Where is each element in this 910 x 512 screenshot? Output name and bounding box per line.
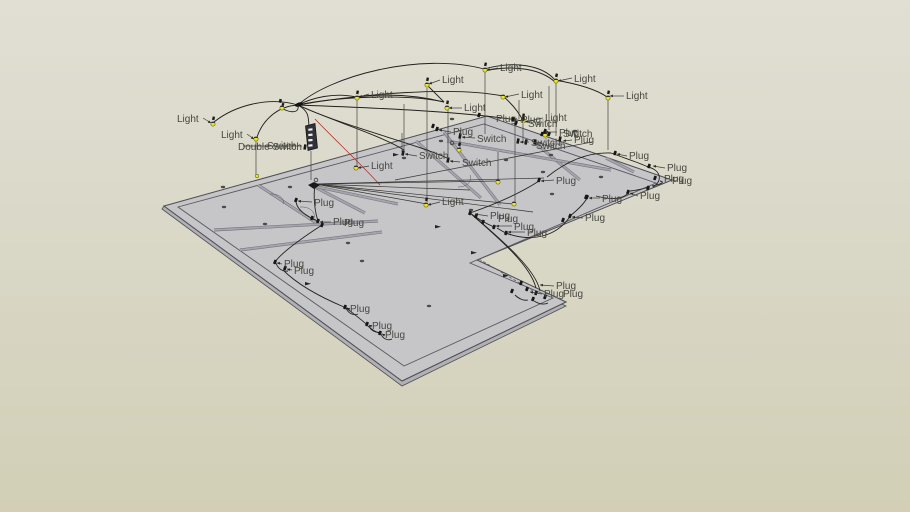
svg-text:Light: Light bbox=[177, 114, 199, 125]
svg-text:Light: Light bbox=[521, 90, 543, 101]
svg-text:Plug: Plug bbox=[294, 266, 314, 277]
svg-text:Light: Light bbox=[371, 161, 393, 172]
svg-text:Plug: Plug bbox=[602, 194, 622, 205]
svg-text:Switch: Switch bbox=[462, 158, 491, 169]
svg-text:Plug: Plug bbox=[453, 127, 473, 138]
svg-text:Plug: Plug bbox=[385, 330, 405, 341]
svg-text:Plug: Plug bbox=[585, 213, 605, 224]
svg-text:Plug: Plug bbox=[640, 191, 660, 202]
svg-text:Light: Light bbox=[500, 63, 522, 74]
svg-text:Switch: Switch bbox=[419, 151, 448, 162]
svg-text:Light: Light bbox=[626, 91, 648, 102]
svg-text:Plug: Plug bbox=[629, 151, 649, 162]
svg-text:Plug: Plug bbox=[344, 218, 364, 229]
svg-text:Plug: Plug bbox=[574, 135, 594, 146]
svg-text:Switch: Switch bbox=[528, 119, 557, 130]
svg-text:Plug: Plug bbox=[667, 163, 687, 174]
svg-text:Plug: Plug bbox=[314, 198, 334, 209]
svg-text:Light: Light bbox=[574, 74, 596, 85]
svg-text:Light: Light bbox=[221, 130, 243, 141]
svg-text:Plug: Plug bbox=[563, 289, 583, 300]
svg-text:Plug: Plug bbox=[556, 176, 576, 187]
svg-text:Plug: Plug bbox=[496, 114, 516, 125]
svg-text:Switch: Switch bbox=[267, 141, 296, 152]
svg-text:Plug: Plug bbox=[350, 304, 370, 315]
svg-text:Light: Light bbox=[442, 75, 464, 86]
svg-text:Light: Light bbox=[371, 90, 393, 101]
svg-text:Plug: Plug bbox=[664, 174, 684, 185]
svg-text:Plug: Plug bbox=[527, 228, 547, 239]
svg-text:Switch: Switch bbox=[536, 141, 565, 152]
svg-text:Switch: Switch bbox=[477, 134, 506, 145]
svg-text:Light: Light bbox=[442, 197, 464, 208]
svg-text:Light: Light bbox=[464, 103, 486, 114]
svg-text:Plug: Plug bbox=[544, 289, 564, 300]
